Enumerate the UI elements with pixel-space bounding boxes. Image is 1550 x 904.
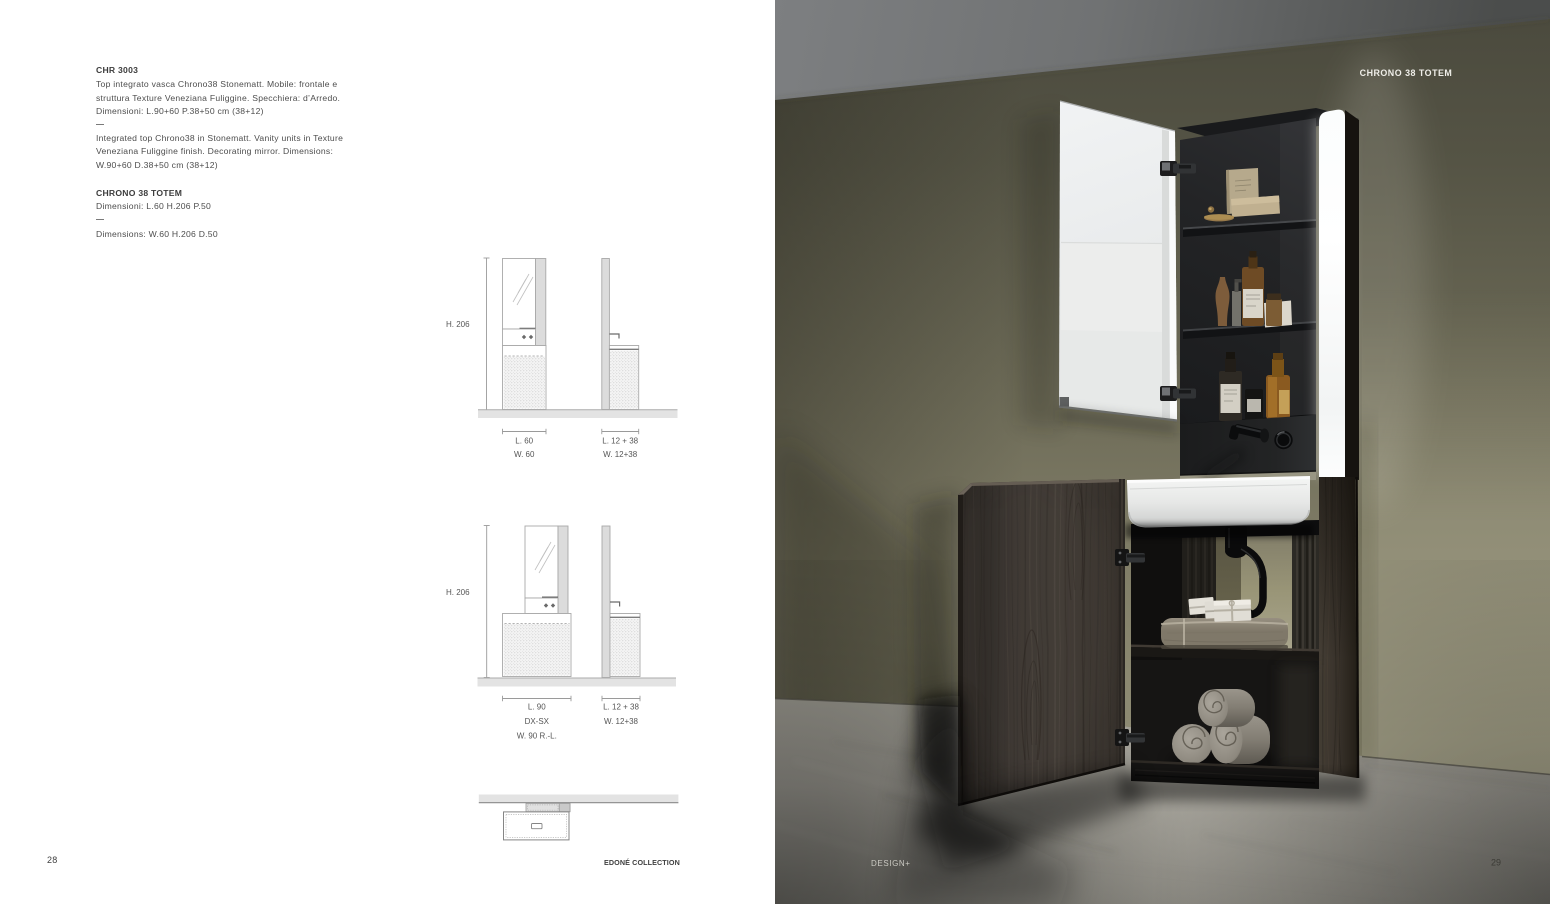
svg-text:W. 90 R.-L.: W. 90 R.-L. bbox=[517, 732, 557, 741]
svg-text:W. 12+38: W. 12+38 bbox=[603, 450, 638, 459]
svg-text:L. 12 + 38: L. 12 + 38 bbox=[603, 703, 639, 712]
svg-text:CHRONO 38 TOTEM: CHRONO 38 TOTEM bbox=[1360, 68, 1453, 78]
svg-text:H. 206: H. 206 bbox=[446, 320, 470, 329]
svg-text:W. 60: W. 60 bbox=[514, 450, 535, 459]
svg-text:DX-SX: DX-SX bbox=[525, 717, 550, 726]
svg-text:DESIGN+: DESIGN+ bbox=[871, 859, 911, 868]
svg-text:L. 60: L. 60 bbox=[515, 437, 533, 446]
svg-text:L. 90: L. 90 bbox=[528, 703, 546, 712]
svg-text:H. 206: H. 206 bbox=[446, 588, 470, 597]
svg-text:W. 12+38: W. 12+38 bbox=[604, 717, 639, 726]
svg-text:29: 29 bbox=[1491, 858, 1501, 868]
svg-text:L. 12 + 38: L. 12 + 38 bbox=[602, 437, 638, 446]
